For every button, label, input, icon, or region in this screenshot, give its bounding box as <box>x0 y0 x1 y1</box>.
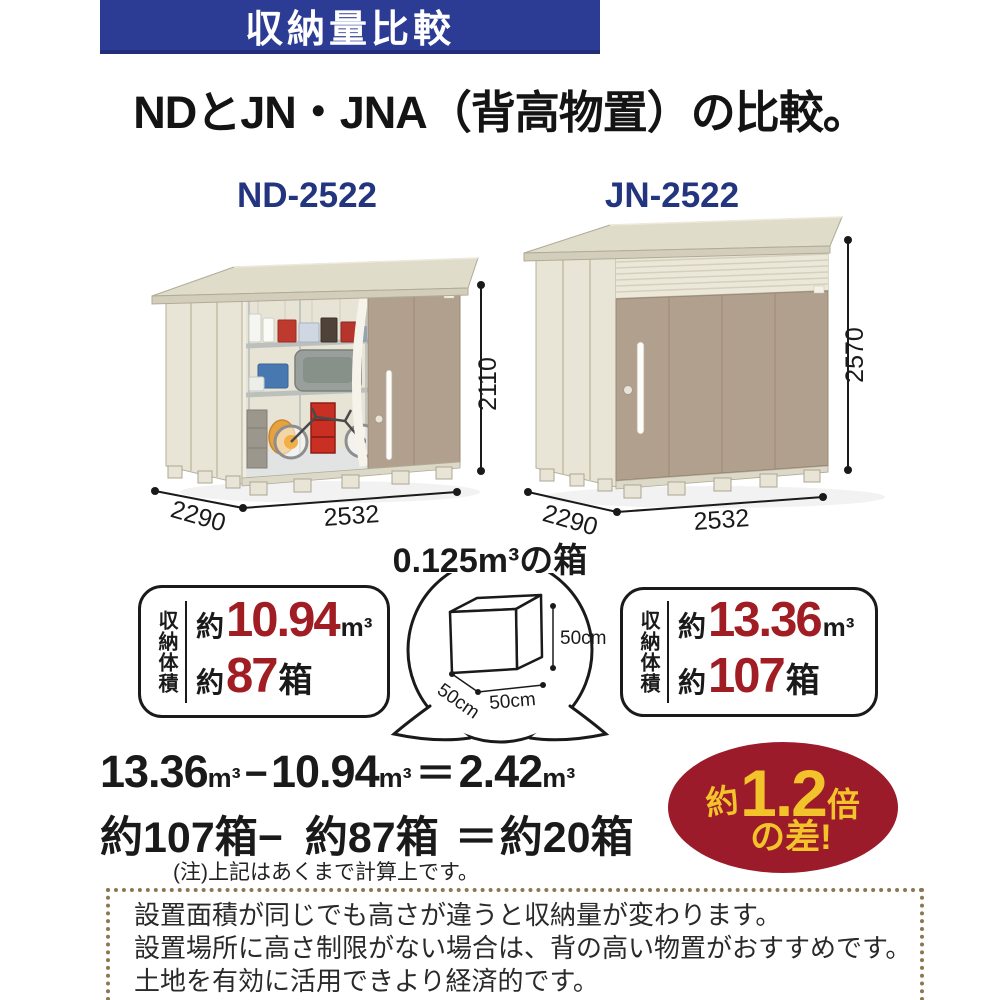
boxes-unit: 箱 <box>786 653 820 702</box>
dimension-width-nd: 2532 <box>323 500 380 532</box>
formula-n3: 2.42 <box>459 746 543 798</box>
badge-value: 1.2 <box>740 760 826 826</box>
stat-divider <box>185 601 187 703</box>
stat-boxes-row: 約 107 箱 <box>678 652 854 708</box>
jn-roof <box>524 217 842 261</box>
model-label-nd: ND-2522 <box>207 176 407 216</box>
equals-sign: ＝ <box>416 741 456 799</box>
approx-label: 約 <box>678 661 706 701</box>
shed-illustration-jn: 2570 2290 2532 <box>505 205 890 545</box>
footer-line-3: 土地を有効に活用できより経済的です。 <box>134 965 920 998</box>
stat-box-nd: 収納体積 約 10.94 m³ 約 87 箱 <box>138 585 390 718</box>
dimension-height-jn: 2570 <box>841 327 869 383</box>
door-lock <box>624 386 633 395</box>
infographic-canvas: 収納量比較 NDとJN・JNA（背高物置）の比較。 ND-2522 JN-252… <box>0 0 1000 1000</box>
cube-bubble-illustration: 50cm 50cm 50cm <box>375 573 645 763</box>
formula-unit: m³ <box>542 763 575 794</box>
stat-boxes-row: 約 87 箱 <box>196 652 372 708</box>
section-banner: 収納量比較 <box>100 0 600 54</box>
door-lock <box>375 415 383 423</box>
brand-tag <box>814 286 824 293</box>
formula-unit: m³ <box>208 763 241 794</box>
stat-label: 収納体積 <box>154 610 178 694</box>
nd-door <box>368 284 460 471</box>
cube-icon <box>450 595 542 673</box>
dimension-depth-nd: 2290 <box>168 495 229 537</box>
boxes-value: 107 <box>708 652 784 701</box>
difference-badge: 約 1.2 倍 の差! <box>668 742 898 873</box>
boxes-value: 87 <box>226 652 277 701</box>
footer-note-box: 設置面積が同じでも高さが違うと収納量が変わります。 設置場所に高さ制限がない場合… <box>106 888 924 1000</box>
jn-door <box>616 286 828 481</box>
approx-label: 約 <box>196 661 224 701</box>
dimension-height-nd: 2110 <box>474 357 502 411</box>
calculation-note: (注)上記はあくまで計算上です。 <box>173 856 479 886</box>
calculation-block: 13.36 m³ − 10.94 m³ ＝ 2.42 m³ 約107箱 − 約8… <box>100 741 720 865</box>
stat-box-jn: 収納体積 約 13.36 m³ 約 107 箱 <box>620 587 878 717</box>
cube-dim-height: 50cm <box>560 628 606 649</box>
stat-volume-row: 約 10.94 m³ <box>196 596 372 652</box>
nd-interior <box>246 291 378 479</box>
approx-label: 約 <box>196 605 224 645</box>
shed-illustration-nd: 2110 2290 2532 <box>140 250 510 540</box>
volume-value: 10.94 <box>226 596 339 645</box>
formula-n1: 13.36 <box>100 746 208 798</box>
formula-n3: 約20箱 <box>500 803 634 865</box>
volume-unit: m³ <box>823 612 855 643</box>
volume-formula: 13.36 m³ − 10.94 m³ ＝ 2.42 m³ <box>100 741 720 799</box>
footer-line-1: 設置面積が同じでも高さが違うと収納量が変わります。 <box>134 899 920 932</box>
badge-main-line: 約 1.2 倍 <box>706 760 860 826</box>
footer-line-2: 設置場所に高さ制限がない場合は、背の高い物置がおすすめです。 <box>134 932 920 965</box>
stat-volume-row: 約 13.36 m³ <box>678 596 854 652</box>
dimension-width-jn: 2532 <box>693 504 750 536</box>
cube-dim-width: 50cm <box>488 689 536 714</box>
banner-title: 収納量比較 <box>245 0 455 53</box>
stat-label: 収納体積 <box>636 610 660 694</box>
door-handle <box>637 342 644 434</box>
boxes-unit: 箱 <box>279 653 313 702</box>
formula-unit: m³ <box>379 763 412 794</box>
jn-side-wall <box>536 250 616 487</box>
approx-label: 約 <box>678 605 706 645</box>
badge-prefix: 約 <box>704 783 741 820</box>
volume-value: 13.36 <box>708 596 821 645</box>
badge-sub-line: の差! <box>750 820 832 855</box>
stat-divider <box>667 601 669 703</box>
volume-unit: m³ <box>341 612 373 643</box>
minus-sign: − <box>245 752 268 797</box>
nd-side-wall <box>166 292 242 484</box>
formula-n2: 10.94 <box>271 746 379 798</box>
door-handle <box>386 370 392 460</box>
shed-shadow <box>180 481 480 503</box>
page-title: NDとJN・JNA（背高物置）の比較。 <box>0 76 1000 141</box>
badge-suffix: 倍 <box>827 788 860 821</box>
